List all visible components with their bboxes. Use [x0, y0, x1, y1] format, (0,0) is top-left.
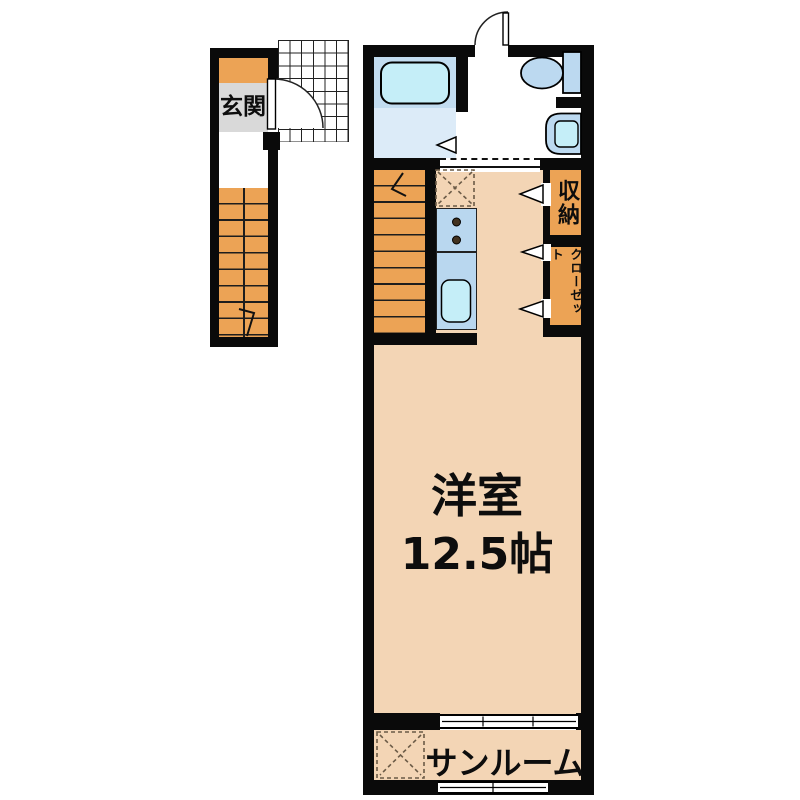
closet-label: クローゼット [551, 248, 581, 324]
sunroom-sliding-window [440, 714, 578, 729]
floor-plan: 玄関 収納 クローゼット 洋室 12.5帖 サンルーム [0, 0, 800, 800]
accordion-door [440, 158, 540, 172]
storage-label: 収納 [551, 172, 581, 234]
closet-bottom-wall [543, 325, 581, 337]
staircase [219, 188, 268, 337]
kitchen-stove [436, 208, 477, 252]
washroom-floor [468, 57, 581, 158]
kitchen-counter [436, 252, 477, 330]
bathroom-partition-wall [456, 45, 468, 112]
room-name-label: 洋室 [374, 460, 580, 526]
entrance-landing [219, 132, 268, 188]
entrance-door-opening [268, 80, 278, 132]
sunroom-divider-wall [363, 713, 440, 730]
entrance-wall-stub [263, 132, 280, 150]
bathroom-door [456, 112, 468, 158]
staircase-center-line [243, 188, 245, 337]
entry-door-leaf-icon [503, 13, 509, 45]
entry-door-opening [475, 45, 508, 57]
stair-kitchen-wall [425, 170, 436, 345]
bathroom-tub-area [374, 57, 456, 108]
internal-staircase [374, 170, 425, 333]
bottom-window [438, 781, 548, 794]
block-bottom-wall [363, 333, 477, 345]
unit-right-wall [581, 45, 594, 795]
entrance-step [219, 58, 268, 83]
entry-door-swing [475, 12, 508, 45]
entry-door-arc-icon [475, 12, 508, 45]
sunroom-label: サンルーム [420, 738, 590, 784]
bathroom-floor [374, 108, 456, 158]
room-size-label: 12.5帖 [374, 518, 580, 582]
entrance-label: 玄関 [218, 88, 268, 126]
porch-tile-grid [278, 40, 349, 142]
accordion-door-track [440, 166, 540, 168]
